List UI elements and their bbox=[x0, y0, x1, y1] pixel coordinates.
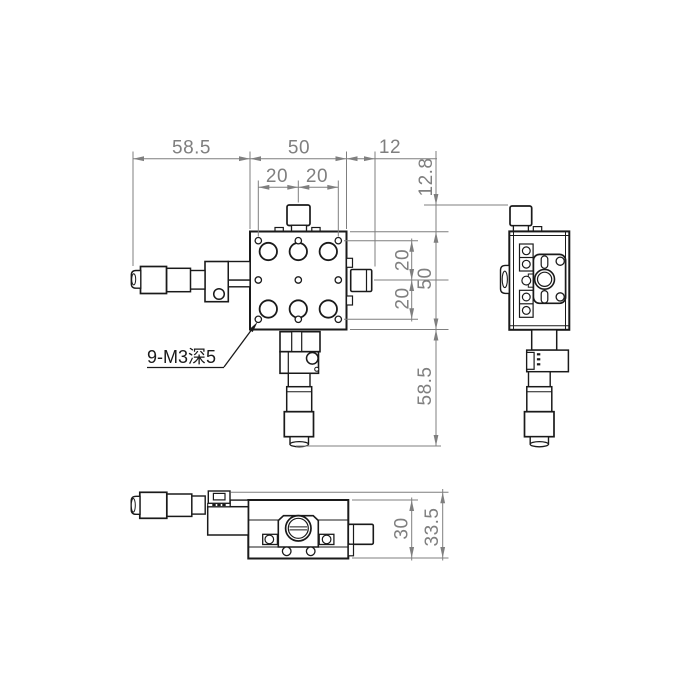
dim-right-50: 50 bbox=[415, 267, 436, 289]
bearing-left bbox=[263, 534, 278, 544]
dim-top-20a: 20 bbox=[266, 166, 288, 187]
left-micrometer bbox=[131, 262, 250, 302]
dim-right-20b: 20 bbox=[393, 287, 414, 309]
hole-callout-text: 9-M3深5 bbox=[147, 347, 216, 367]
side-view bbox=[501, 206, 570, 447]
side-bottom-micrometer bbox=[525, 330, 569, 447]
ball-cage bbox=[520, 244, 534, 317]
dim-top-58-5: 58.5 bbox=[172, 138, 211, 159]
bottom-micrometer bbox=[280, 332, 320, 447]
front-view bbox=[131, 205, 371, 447]
right-tab-top bbox=[347, 258, 353, 267]
top-view-knob bbox=[278, 516, 318, 547]
technical-drawing-page: 58.5 50 12 20 20 20 20 12.8 50 58.5 30 3… bbox=[0, 0, 700, 700]
right-tab-bottom bbox=[347, 296, 353, 305]
hole-callout: 9-M3深5 bbox=[147, 322, 258, 368]
dim-right-20a: 20 bbox=[393, 249, 414, 271]
top-view-micrometer bbox=[131, 491, 248, 535]
right-stub bbox=[351, 270, 372, 292]
dim-bottom-33-5: 33.5 bbox=[422, 508, 443, 547]
side-top-knob bbox=[510, 206, 532, 231]
side-plate bbox=[533, 254, 565, 303]
dim-top-20b: 20 bbox=[306, 166, 328, 187]
xy-stage-drawing: 58.5 50 12 20 20 20 20 12.8 50 58.5 30 3… bbox=[0, 0, 700, 700]
micrometer-tip-end bbox=[501, 265, 510, 293]
dim-right-12-8: 12.8 bbox=[416, 158, 437, 197]
top-view-hole-right bbox=[306, 547, 315, 556]
top-knob bbox=[287, 205, 310, 231]
dim-bottom-30: 30 bbox=[392, 517, 413, 539]
dim-top-12: 12 bbox=[379, 137, 401, 158]
top-view bbox=[131, 491, 373, 559]
top-view-hole-left bbox=[282, 547, 291, 556]
top-view-stub bbox=[348, 524, 373, 556]
dim-top-50: 50 bbox=[288, 138, 310, 159]
bearing-right bbox=[319, 534, 334, 544]
dim-right-58-5: 58.5 bbox=[415, 367, 436, 406]
